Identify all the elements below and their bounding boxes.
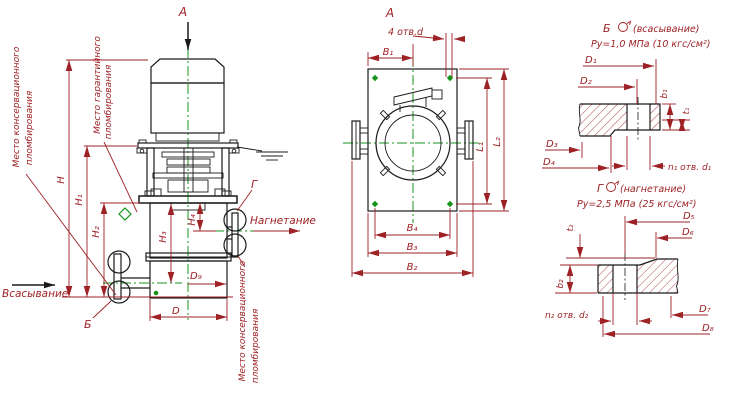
flange-b-hatch-left — [580, 104, 627, 136]
dim-label-D3: D₃ — [546, 139, 558, 150]
dim-label-B2: B₂ — [407, 262, 418, 273]
flange-g-title-ref: Г — [597, 182, 604, 195]
centerlines-plan — [343, 57, 483, 223]
lantern-bolt-left — [140, 149, 144, 153]
dim-label-t1: t₁ — [682, 108, 692, 115]
flange-g-hatch-left — [598, 265, 613, 293]
flange-b-pressure: Ру=1,0 МПа (10 кгс/см²) — [591, 39, 711, 50]
dim-label-D8: D₈ — [702, 323, 714, 334]
left-view: А H H₁ H₂ H₃ H₄ D₉ D Б Г Всасывание Нагн… — [2, 5, 316, 383]
dim-label-H1: H₁ — [74, 194, 85, 206]
dim-label-D7: D₇ — [699, 304, 711, 315]
flange-b-title-ref: Б — [603, 22, 611, 35]
lantern-lip-right — [229, 148, 239, 153]
plan-flange-left — [352, 121, 368, 159]
dim-label-D9: D₉ — [190, 271, 202, 282]
discharge-label: Нагнетание — [250, 215, 316, 227]
flange-g-title-type: (нагнетание) — [620, 184, 686, 195]
dim-label-L1: L₁ — [475, 142, 486, 152]
dim-label-B3: B₃ — [407, 242, 418, 253]
leader-flange-b — [93, 301, 111, 318]
seal-warranty-line2: пломбирования — [104, 64, 114, 139]
dim-label-D2: D₂ — [580, 76, 592, 87]
flange-b-break-line — [579, 104, 581, 136]
flange-suction-detail: Б (всасывание) Ру=1,0 МПа (10 кгс/см²) D… — [542, 22, 712, 174]
lantern-bolt-right — [232, 149, 236, 153]
dim-label-D1: D₁ — [585, 55, 597, 66]
seal-mark-dot — [154, 291, 159, 296]
plan-view: А 4 отв.d B₁ L₁ L₂ B₄ B₃ B₂ — [343, 6, 509, 277]
holes-note-plan: 4 отв.d — [388, 27, 424, 38]
dim-label-D: D — [172, 306, 180, 317]
dim-label-t2: t₂ — [566, 224, 576, 231]
dim-label-H4: H₄ — [187, 214, 198, 226]
liquid-level-mark — [237, 147, 288, 160]
drawing-canvas: А H H₁ H₂ H₃ H₄ D₉ D Б Г Всасывание Нагн… — [0, 0, 750, 409]
flange-b-hatch-right — [650, 104, 660, 130]
centerlines-left-view — [103, 48, 257, 320]
dim-label-D5: D₅ — [683, 211, 695, 222]
lantern-nub-right — [230, 140, 237, 143]
seal-mark-diamond — [119, 208, 131, 220]
holes-note-g: n₂ отв. d₂ — [545, 311, 589, 321]
flange-b-title-type: (всасывание) — [633, 24, 699, 35]
seal-conservation-left-line2: пломбирования — [25, 90, 35, 165]
hole-mark-bl — [372, 201, 378, 207]
plan-flange-right — [457, 121, 473, 159]
view-a-label: А — [178, 5, 187, 19]
seal-warranty-line1: Место гарантийного — [93, 36, 103, 134]
leader-warranty — [104, 142, 137, 212]
dim-label-D4: D₄ — [543, 157, 555, 168]
dim-label-H2: H₂ — [91, 226, 102, 238]
left-view-dimensions — [26, 60, 300, 321]
dim-label-H: H — [56, 176, 67, 184]
dim-label-B1: B₁ — [383, 47, 394, 58]
lantern-nub-left — [139, 140, 146, 143]
hole-mark-br — [447, 201, 453, 207]
holes-note-b: n₁ отв. d₁ — [668, 163, 712, 173]
leader-flange-g — [237, 190, 252, 211]
seal-conservation-right-line1: Место консервационного — [238, 260, 248, 381]
dim-label-D6: D₆ — [682, 227, 694, 238]
dim-label-H3: H₃ — [158, 231, 169, 243]
flange-g-ref-label: Г — [251, 178, 258, 191]
flange-discharge-detail: Г (нагнетание) Ру=2,5 МПа (25 кгс/см²) D… — [545, 182, 714, 338]
seal-conservation-right-line2: пломбирования — [251, 308, 261, 383]
dim-label-B4: B₄ — [407, 223, 418, 234]
rotated-view-icon-2 — [607, 182, 619, 192]
suction-label: Всасывание — [2, 288, 68, 300]
plan-view-label: А — [385, 6, 394, 20]
lantern-lip-left — [137, 148, 147, 153]
flange-g-pressure: Ру=2,5 МПа (25 кгс/см²) — [577, 199, 697, 210]
suction-flange — [108, 251, 150, 303]
leader-conservation-left — [26, 174, 116, 295]
hole-mark-tl — [372, 75, 378, 81]
dim-label-L2: L₂ — [492, 137, 503, 147]
dim-label-b2: b₂ — [556, 279, 566, 289]
rotated-view-icon — [619, 22, 631, 32]
flange-b-ref-label: Б — [84, 318, 92, 331]
dim-label-b1: b₁ — [660, 89, 670, 99]
seal-conservation-left-line1: Место консервационного — [12, 46, 22, 167]
